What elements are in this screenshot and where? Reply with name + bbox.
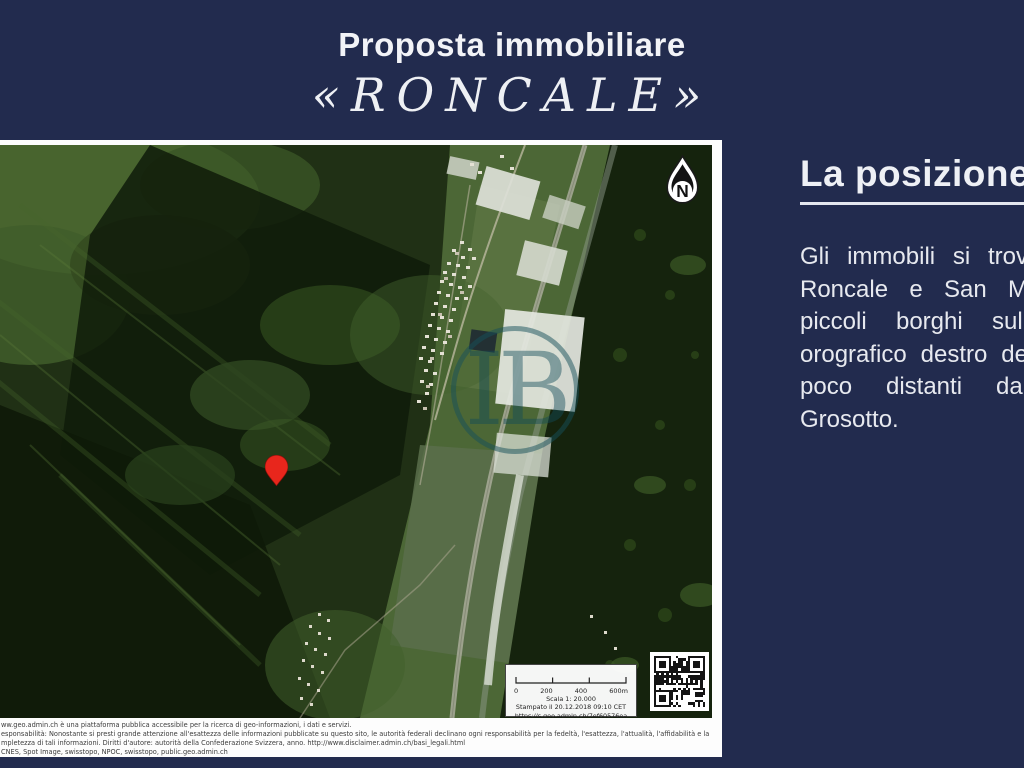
qr-code [650, 652, 709, 711]
paragraph-line: piccoli borghi sull [800, 306, 1024, 339]
scale-tick-200: 200 [540, 688, 552, 695]
disclaimer-line-1: ww.geo.admin.ch è una piattaforma pubbli… [1, 721, 710, 730]
scale-ratio-text: Scala 1: 20.000 [506, 695, 636, 703]
scale-tick-400: 400 [575, 688, 587, 695]
compass-n-label: N [676, 181, 689, 201]
slide-title: Proposta immobiliare [0, 26, 1024, 64]
scale-tick-labels: 0 200 400 600m [514, 688, 628, 695]
paragraph-line: poco distanti dal [800, 371, 1024, 404]
compass-north-icon: N [660, 155, 705, 210]
scale-bar [514, 676, 628, 684]
watermark-letters: IB [465, 340, 566, 440]
position-description: Gli immobili si trov Roncale e San M pic… [800, 241, 1024, 436]
disclaimer-line-2: esponsabilità: Nonostante si presti gran… [1, 730, 710, 739]
satellite-terrain [0, 145, 712, 718]
map-scale-box: 0 200 400 600m Scala 1: 20.000 Stampato … [505, 664, 637, 717]
disclaimer-line-3: mpletezza di tali informazioni. Diritti … [1, 739, 710, 748]
paragraph-line: orografico destro de [800, 339, 1024, 372]
scale-tick-0: 0 [514, 688, 518, 695]
paragraph-line: Roncale e San M [800, 274, 1024, 307]
print-date-text: Stampato il 20.12.2018 09:10 CET [506, 703, 636, 711]
agency-watermark-logo: IB [451, 326, 579, 454]
scale-tick-600: 600m [609, 688, 628, 695]
map-panel: IB N 0 200 400 600m Scala 1: 20.000 S [0, 140, 722, 757]
satellite-map: IB N 0 200 400 600m Scala 1: 20.000 S [0, 145, 712, 718]
slide-subtitle: «RONCALE» [0, 68, 1024, 122]
map-disclaimer: ww.geo.admin.ch è una piattaforma pubbli… [0, 718, 712, 757]
section-heading-la-posizione: La posizione [800, 153, 1024, 205]
paragraph-line: Grosotto. [800, 404, 1024, 437]
disclaimer-line-4: CNES, Spot Image, swisstopo, NPOC, swiss… [1, 748, 710, 757]
paragraph-line: Gli immobili si trov [800, 241, 1024, 274]
location-marker-icon [265, 455, 288, 486]
